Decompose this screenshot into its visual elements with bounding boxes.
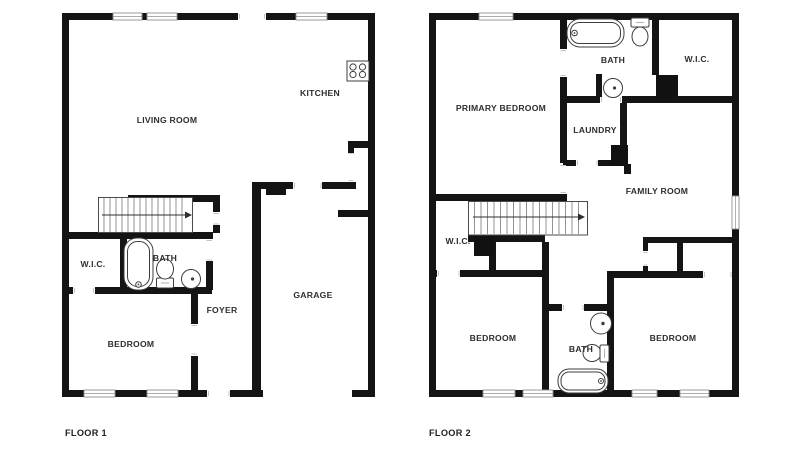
- room-label-primary-bedroom: PRIMARY BEDROOM: [456, 103, 546, 113]
- window-icon: [680, 390, 709, 397]
- window-icon: [479, 13, 513, 20]
- stove-icon: [347, 61, 369, 81]
- floor2-title: FLOOR 2: [429, 428, 471, 438]
- window-icon: [483, 390, 515, 397]
- window-icon: [84, 390, 115, 397]
- toilet-icon: [631, 18, 649, 46]
- sink-icon: [604, 79, 623, 98]
- floor1-title: FLOOR 1: [65, 428, 107, 438]
- toilet-icon: [157, 259, 174, 288]
- room-label-bath-lower: BATH: [569, 344, 593, 354]
- room-label-bedroom: BEDROOM: [108, 339, 155, 349]
- room-label-bath: BATH: [153, 253, 177, 263]
- floorplan-canvas: LIVING ROOM KITCHEN W.I.C. BATH BEDROOM …: [0, 0, 800, 449]
- window-icon: [296, 13, 327, 20]
- room-label-garage: GARAGE: [293, 290, 332, 300]
- room-label-wic-hall: W.I.C.: [446, 236, 471, 246]
- door-swing-fill: [656, 75, 678, 98]
- bathtub-icon: [124, 238, 153, 290]
- floorplan-page: LIVING ROOM KITCHEN W.I.C. BATH BEDROOM …: [0, 0, 800, 449]
- floor1-plan: LIVING ROOM KITCHEN W.I.C. BATH BEDROOM …: [62, 13, 375, 438]
- room-label-laundry: LAUNDRY: [573, 125, 616, 135]
- sink-icon: [182, 270, 201, 289]
- room-label-living-room: LIVING ROOM: [137, 115, 198, 125]
- room-label-wic: W.I.C.: [81, 259, 106, 269]
- window-icon: [113, 13, 142, 20]
- door-swing-fill: [611, 145, 628, 166]
- bathtub-icon: [567, 19, 624, 47]
- room-label-kitchen: KITCHEN: [300, 88, 340, 98]
- room-label-bedroom-right: BEDROOM: [650, 333, 697, 343]
- staircase: [99, 198, 193, 233]
- window-icon: [147, 390, 178, 397]
- window-icon: [523, 390, 553, 397]
- window-icon: [147, 13, 177, 20]
- window-icon: [732, 196, 739, 229]
- room-label-foyer: FOYER: [207, 305, 238, 315]
- staircase: [469, 202, 588, 236]
- window-icon: [632, 390, 657, 397]
- room-label-wic-upper: W.I.C.: [685, 54, 710, 64]
- door-swing-fill: [474, 236, 494, 256]
- sink-icon: [591, 313, 612, 334]
- bathtub-icon: [558, 369, 608, 393]
- room-label-bath-upper: BATH: [601, 55, 625, 65]
- room-label-family-room: FAMILY ROOM: [626, 186, 688, 196]
- floor2-plan: PRIMARY BEDROOM BATH W.I.C. LAUNDRY FAMI…: [429, 13, 739, 438]
- room-label-bedroom-left: BEDROOM: [470, 333, 517, 343]
